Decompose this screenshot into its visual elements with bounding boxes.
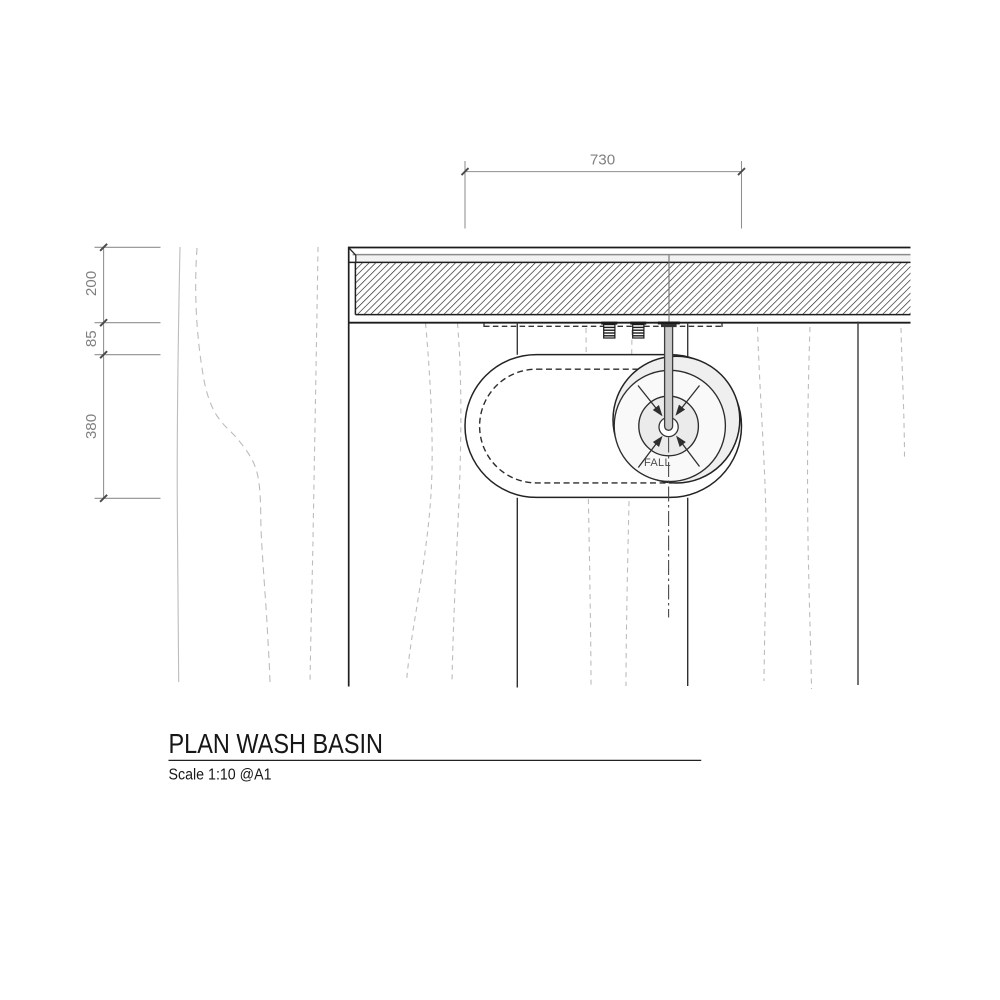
svg-text:200: 200 — [83, 271, 100, 296]
svg-text:FALL: FALL — [644, 457, 671, 469]
svg-text:85: 85 — [83, 330, 100, 347]
svg-text:Scale 1:10 @A1: Scale 1:10 @A1 — [169, 767, 272, 784]
svg-text:380: 380 — [83, 414, 100, 439]
svg-text:PLAN WASH BASIN: PLAN WASH BASIN — [169, 728, 384, 759]
svg-text:730: 730 — [590, 152, 615, 169]
